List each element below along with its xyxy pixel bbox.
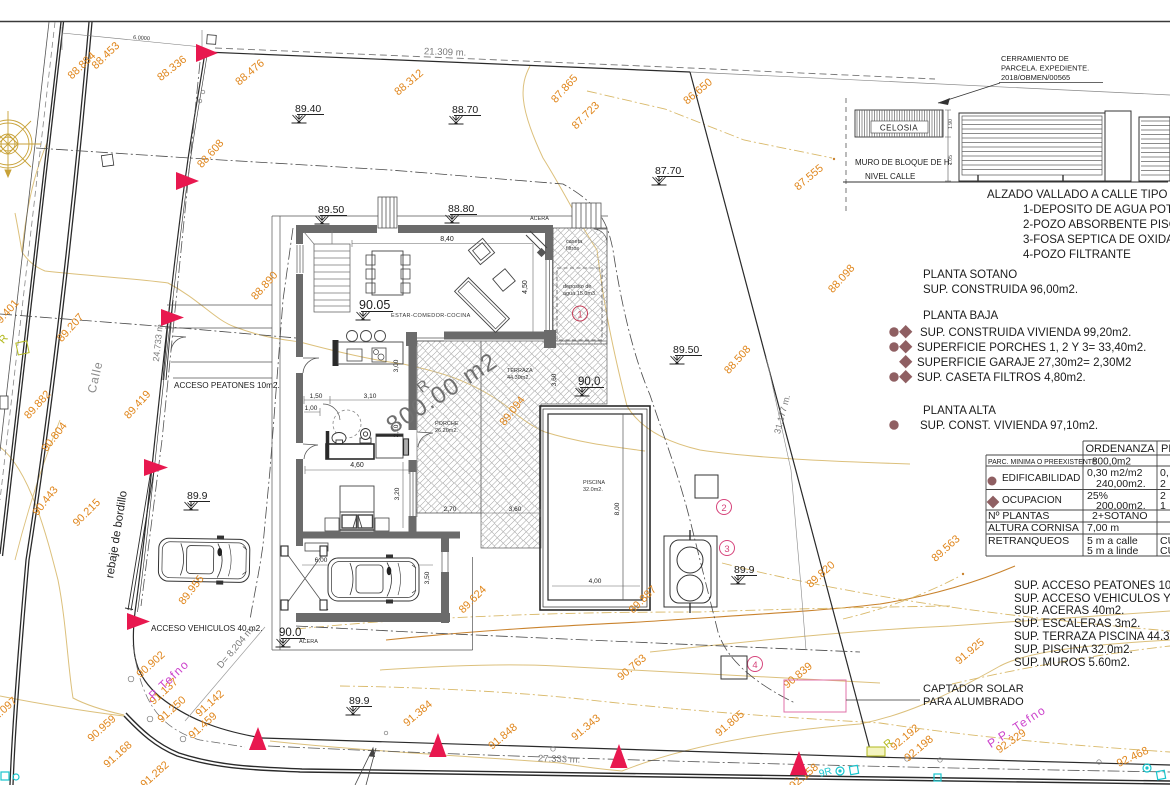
svg-text:MURO DE BLOQUE DE H.: MURO DE BLOQUE DE H.: [855, 158, 952, 167]
svg-text:3,60: 3,60: [509, 506, 522, 513]
svg-text:87.70: 87.70: [655, 165, 681, 177]
svg-text:1-DEPOSITO DE AGUA POTABLE: 1-DEPOSITO DE AGUA POTABLE: [1023, 204, 1170, 216]
svg-text:89.50: 89.50: [673, 344, 699, 356]
svg-text:2+SOTANO: 2+SOTANO: [1092, 510, 1148, 522]
svg-text:ACCESO VEHICULOS 40 m2.: ACCESO VEHICULOS 40 m2.: [151, 624, 262, 633]
svg-text:88.80: 88.80: [448, 203, 474, 215]
svg-text:6,00: 6,00: [315, 557, 328, 564]
svg-text:2,70: 2,70: [444, 506, 457, 513]
svg-text:PR: PR: [1161, 443, 1170, 455]
svg-text:2018/OBMEN/00565: 2018/OBMEN/00565: [1001, 73, 1070, 82]
svg-text:7,00 m: 7,00 m: [1087, 522, 1119, 534]
svg-text:CELOSIA: CELOSIA: [880, 124, 918, 133]
svg-text:CAPTADOR SOLAR: CAPTADOR SOLAR: [923, 683, 1024, 695]
svg-text:89.9: 89.9: [187, 490, 208, 502]
svg-text:TERRAZA: TERRAZA: [507, 368, 533, 374]
svg-text:89.9: 89.9: [734, 564, 755, 576]
svg-text:ALTURA CORNISA: ALTURA CORNISA: [988, 522, 1079, 534]
svg-text:3: 3: [724, 544, 729, 555]
svg-text:SUP. ACCESO VEHICULOS Y PA: SUP. ACCESO VEHICULOS Y PA: [1014, 593, 1170, 605]
svg-text:SUPERFICIE PORCHES 1, 2 Y 3= 3: SUPERFICIE PORCHES 1, 2 Y 3= 33,40m2.: [917, 342, 1146, 354]
svg-text:3,20: 3,20: [394, 487, 401, 500]
svg-text:ACERA: ACERA: [299, 639, 318, 645]
svg-text:32.0m2.: 32.0m2.: [583, 487, 603, 493]
svg-text:SUP. CONST. VIVIENDA 97,10m2.: SUP. CONST. VIVIENDA 97,10m2.: [920, 420, 1098, 432]
svg-text:SUP. ACERAS 40m2.: SUP. ACERAS 40m2.: [1014, 605, 1124, 617]
svg-text:RETRANQUEOS: RETRANQUEOS: [988, 535, 1069, 547]
svg-text:3-FOSA SEPTICA DE OXIDACION: 3-FOSA SEPTICA DE OXIDACION: [1023, 234, 1170, 246]
svg-text:4,00: 4,00: [589, 578, 602, 585]
svg-text:6.0000: 6.0000: [133, 35, 150, 42]
svg-text:PORCHE: PORCHE: [435, 421, 459, 427]
svg-text:44.30m2.: 44.30m2.: [507, 375, 530, 381]
svg-text:CU: CU: [1160, 545, 1170, 557]
svg-text:SUP. PISCINA 32.0m2.: SUP. PISCINA 32.0m2.: [1014, 644, 1133, 656]
svg-text:Nº PLANTAS: Nº PLANTAS: [988, 510, 1049, 522]
svg-text:240,00m2.: 240,00m2.: [1096, 478, 1146, 490]
svg-text:4-POZO FILTRANTE: 4-POZO FILTRANTE: [1023, 249, 1131, 261]
svg-text:3,00: 3,00: [393, 359, 400, 372]
svg-text:21.309 m.: 21.309 m.: [424, 46, 467, 58]
svg-text:PLANTA BAJA: PLANTA BAJA: [923, 310, 999, 322]
svg-text:8,00: 8,00: [614, 502, 621, 515]
svg-text:deposito de: deposito de: [563, 284, 591, 290]
svg-text:4,60: 4,60: [350, 462, 364, 469]
svg-text:agua 15.0m3.: agua 15.0m3.: [563, 291, 597, 297]
svg-text:1,00: 1,00: [305, 405, 318, 412]
svg-text:PARCELA. EXPEDIENTE.: PARCELA. EXPEDIENTE.: [1001, 64, 1089, 73]
svg-text:SUP. TERRAZA PISCINA 44.30m2: SUP. TERRAZA PISCINA 44.30m2: [1014, 631, 1170, 643]
svg-text:1: 1: [577, 310, 582, 321]
svg-text:5 m a linde: 5 m a linde: [1087, 545, 1139, 557]
svg-text:1.05: 1.05: [948, 155, 954, 165]
svg-text:SUP. MUROS 5.60m2.: SUP. MUROS 5.60m2.: [1014, 657, 1130, 669]
svg-text:90.0: 90.0: [279, 627, 301, 639]
svg-text:3,60: 3,60: [551, 373, 558, 386]
svg-text:1,50: 1,50: [310, 393, 323, 400]
svg-text:SUPERFICIE GARAJE 27,30m2= 2,3: SUPERFICIE GARAJE 27,30m2= 2,30M2: [917, 357, 1131, 369]
svg-text:ESTAR-COMEDOR-COCINA: ESTAR-COMEDOR-COCINA: [391, 313, 471, 319]
svg-text:ORDENANZA: ORDENANZA: [1085, 443, 1155, 455]
svg-text:90,0: 90,0: [578, 376, 600, 388]
svg-text:89.9: 89.9: [349, 695, 370, 707]
svg-text:3,50: 3,50: [424, 571, 431, 584]
svg-text:CERRAMIENTO DE: CERRAMIENTO DE: [1001, 54, 1069, 63]
svg-text:PARA ALUMBRADO: PARA ALUMBRADO: [923, 696, 1024, 708]
svg-text:SUP. ESCALERAS 3m2.: SUP. ESCALERAS 3m2.: [1014, 618, 1140, 630]
svg-text:8,40: 8,40: [440, 236, 454, 243]
svg-text:PISCINA: PISCINA: [583, 480, 605, 486]
svg-text:4: 4: [752, 660, 757, 671]
svg-text:NIVEL CALLE: NIVEL CALLE: [865, 172, 915, 181]
svg-text:SUP. CONSTRUIDA VIVIENDA 99,20: SUP. CONSTRUIDA VIVIENDA 99,20m2.: [920, 327, 1131, 339]
svg-text:1.90: 1.90: [948, 119, 954, 129]
svg-text:SUP. ACCESO PEATONES 10m2: SUP. ACCESO PEATONES 10m2: [1014, 580, 1170, 592]
svg-text:2: 2: [721, 503, 726, 514]
svg-text:89.40: 89.40: [295, 103, 321, 115]
svg-text:26.20m2.: 26.20m2.: [435, 428, 458, 434]
svg-text:SUP. CONSTRUIDA 96,00m2.: SUP. CONSTRUIDA 96,00m2.: [923, 284, 1078, 296]
svg-text:ACCESO PEATONES 10m2.: ACCESO PEATONES 10m2.: [174, 381, 280, 390]
svg-text:SUP. CASETA FILTROS 4,80m2.: SUP. CASETA FILTROS 4,80m2.: [917, 372, 1086, 384]
svg-text:89.50: 89.50: [318, 204, 344, 216]
svg-text:ACERA: ACERA: [530, 216, 549, 222]
svg-text:PLANTA ALTA: PLANTA ALTA: [923, 405, 996, 417]
svg-text:ALZADO VALLADO A CALLE TIPO: ALZADO VALLADO A CALLE TIPO: [987, 189, 1168, 201]
svg-text:EDIFICABILIDAD: EDIFICABILIDAD: [1002, 473, 1080, 484]
svg-text:PLANTA SOTANO: PLANTA SOTANO: [923, 269, 1017, 281]
svg-text:caseta: caseta: [566, 239, 583, 245]
svg-text:90.05: 90.05: [359, 298, 390, 312]
svg-text:OCUPACION: OCUPACION: [1002, 495, 1062, 506]
svg-text:88.70: 88.70: [452, 104, 478, 116]
svg-text:3,10: 3,10: [364, 393, 377, 400]
svg-text:2: 2: [1160, 478, 1166, 490]
svg-text:27.333 m.: 27.333 m.: [538, 753, 581, 765]
svg-text:800,0m2: 800,0m2: [1092, 457, 1131, 468]
svg-text:4,50: 4,50: [522, 280, 529, 294]
svg-text:filtros: filtros: [566, 246, 579, 252]
svg-text:2-POZO ABSORBENTE PISCINA: 2-POZO ABSORBENTE PISCINA: [1023, 219, 1170, 231]
svg-text:PARC. MINIMA O PREEXISTENTE: PARC. MINIMA O PREEXISTENTE: [988, 459, 1097, 466]
svg-text:1: 1: [1160, 500, 1166, 512]
